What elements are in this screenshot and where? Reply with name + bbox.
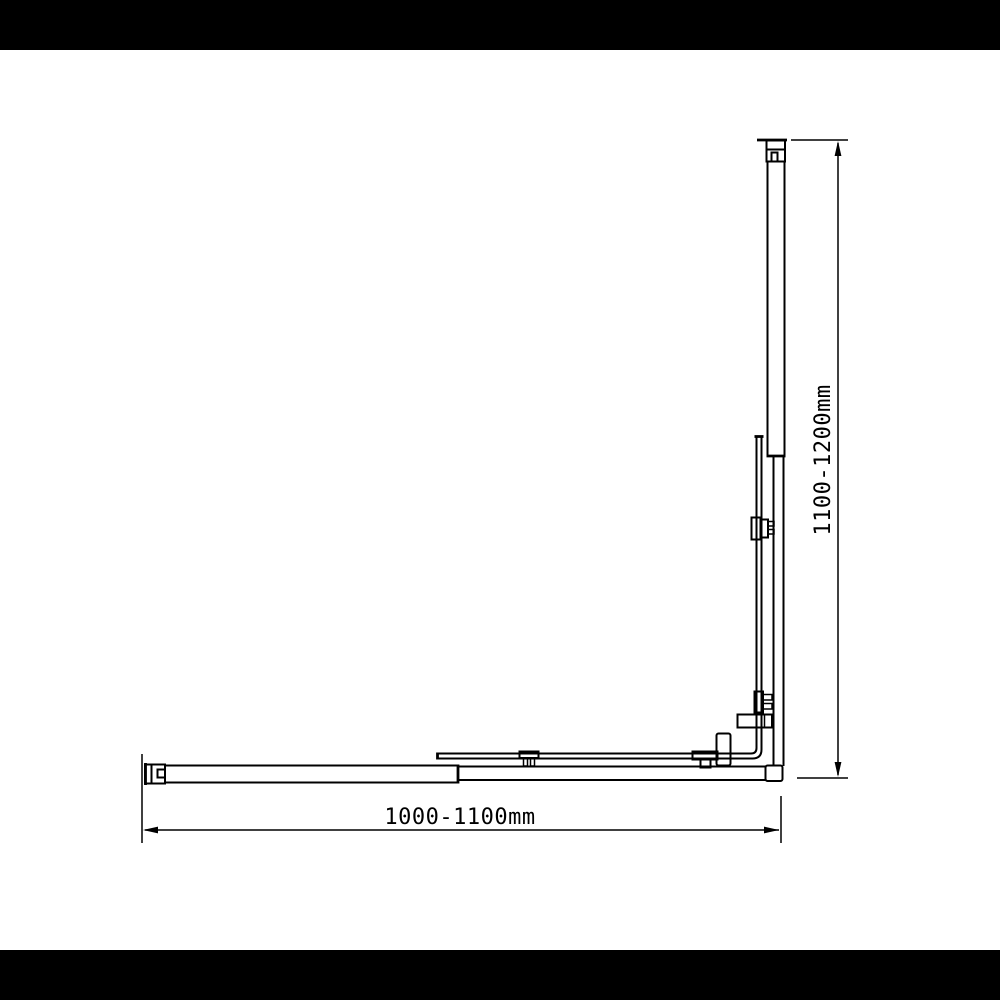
horizontal-rail (458, 767, 766, 781)
height-dimension: 1100-1200mm (791, 140, 848, 778)
arrow-right-icon (764, 827, 779, 834)
sliding-glass-panel (438, 437, 764, 760)
bottom-letterbox-bar (0, 950, 1000, 1000)
corner-fitting-plate (738, 715, 773, 728)
vertical-rail (774, 456, 784, 766)
shower-screen-dimension-drawing: 1100-1200mm 1000-1100mm (0, 0, 1000, 1000)
arrow-down-icon (835, 762, 842, 777)
vertical-roller-bracket (752, 518, 775, 540)
left-wall-bracket (145, 763, 165, 785)
corner-junction-block (766, 766, 783, 782)
drawing-canvas: 1100-1200mm 1000-1100mm (0, 0, 1000, 1000)
height-dimension-label: 1100-1200mm (811, 384, 836, 535)
arrow-up-icon (835, 141, 842, 156)
vertical-wall-profile (767, 161, 786, 456)
handle-knob (717, 734, 731, 766)
width-dimension-label: 1000-1100mm (384, 805, 535, 830)
arrow-left-icon (143, 827, 158, 834)
top-letterbox-bar (0, 0, 1000, 50)
top-wall-bracket (757, 140, 787, 162)
horizontal-wall-profile (164, 765, 458, 784)
